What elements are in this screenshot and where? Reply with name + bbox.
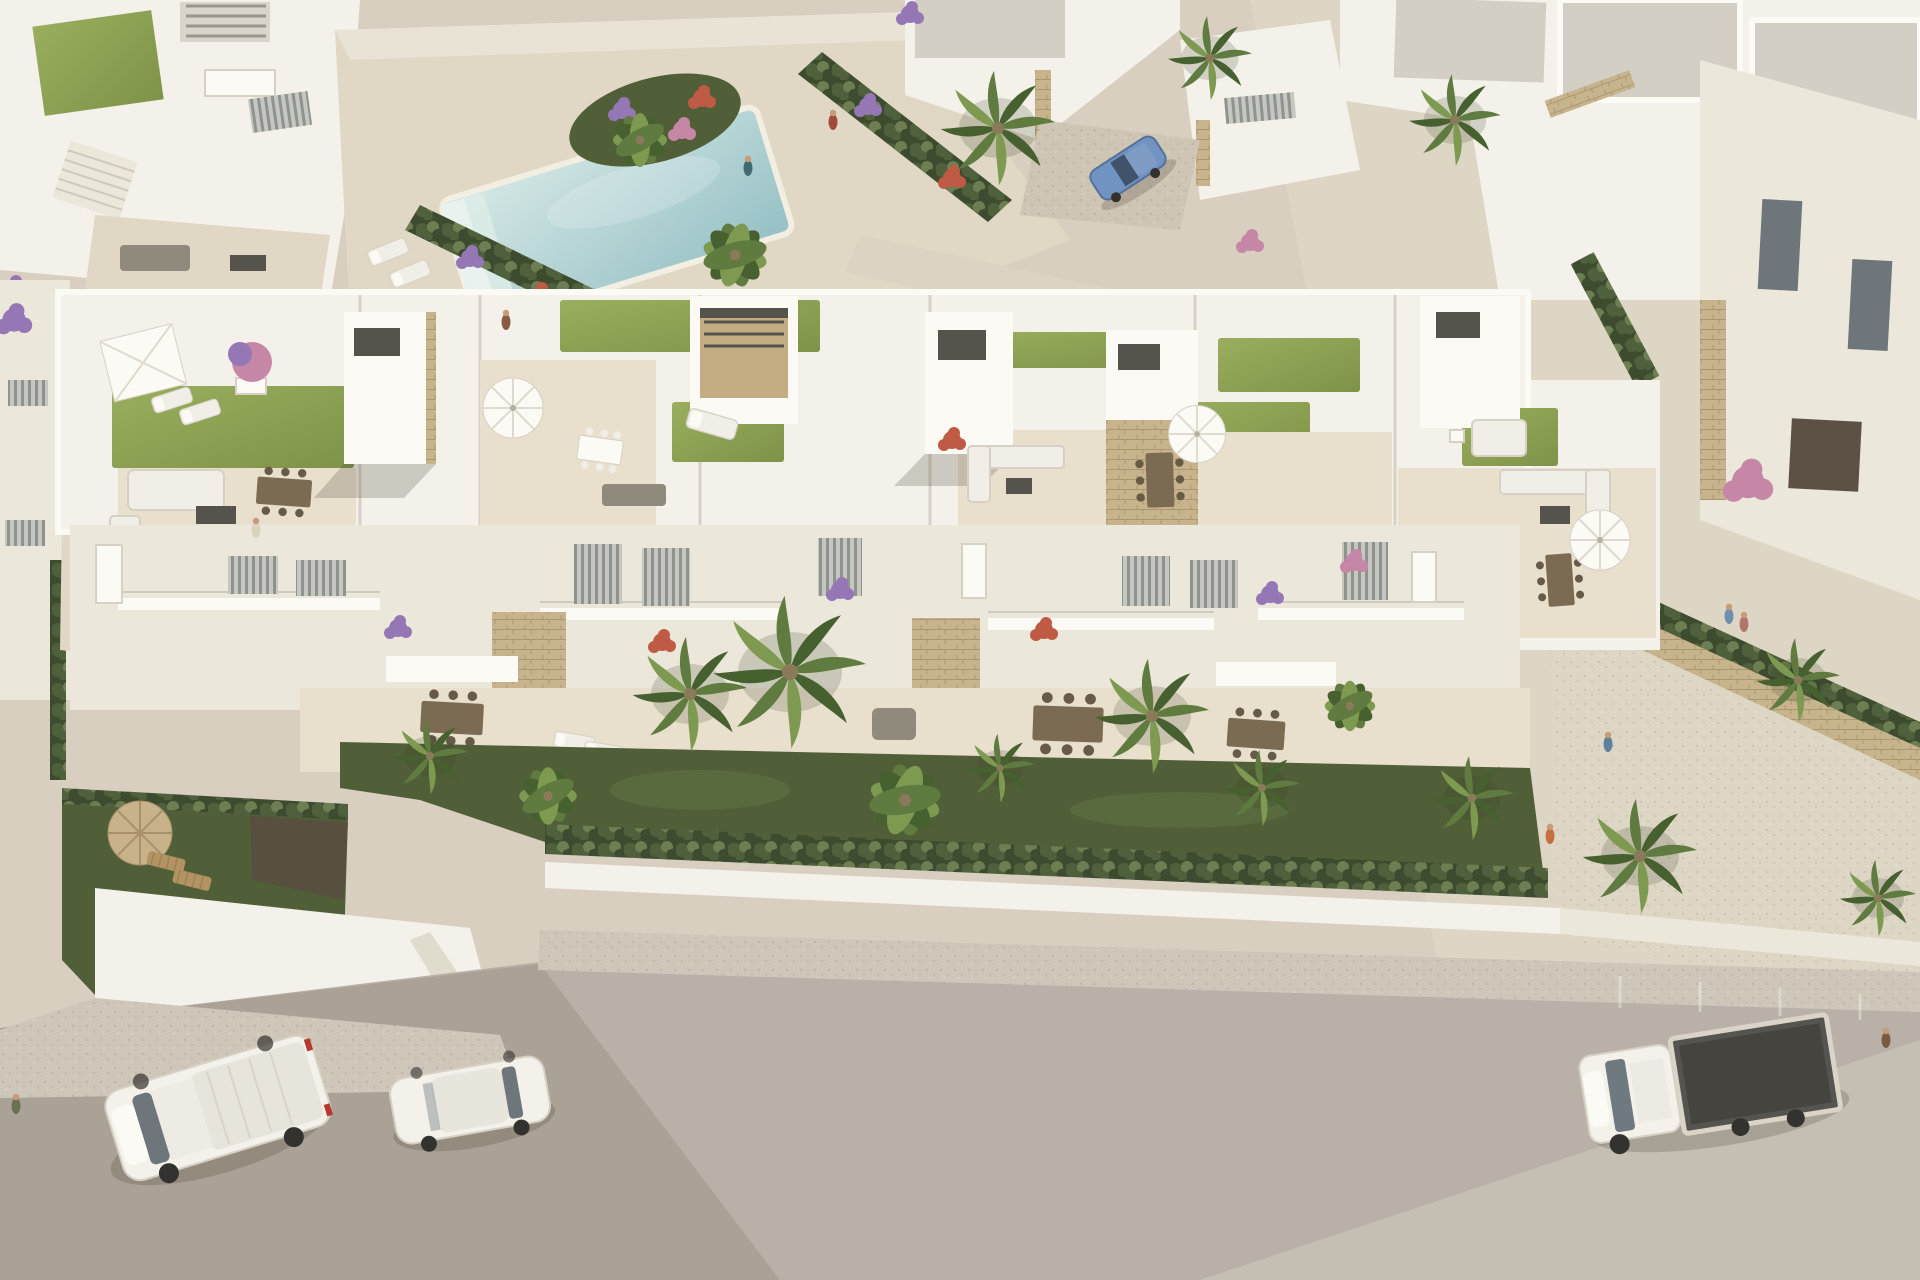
- roof-patio: [1196, 432, 1392, 528]
- flat-roof: [915, 0, 1065, 58]
- coffee-table: [1540, 506, 1570, 524]
- wood-deck: [700, 316, 788, 398]
- outdoor-sofa: [128, 470, 224, 510]
- entrance-porch: [1788, 418, 1862, 492]
- rooftop-lawn: [112, 386, 354, 468]
- person-pool-deck: [744, 156, 753, 176]
- window: [1848, 259, 1893, 351]
- entry-canopy: [1216, 662, 1336, 686]
- person-sidewalk: [12, 1094, 21, 1114]
- patio-table: [205, 70, 275, 96]
- top-left-villas: [0, 0, 360, 300]
- coffee-table: [1006, 478, 1032, 494]
- louver-window: [8, 380, 48, 406]
- stair-bulkhead: [1420, 296, 1520, 428]
- person-balcony: [1740, 612, 1749, 632]
- main-building: [58, 292, 1660, 772]
- ac-unit: [1436, 312, 1480, 338]
- louver-window: [5, 520, 45, 546]
- side-stool: [1450, 430, 1464, 442]
- ac-unit: [938, 330, 986, 360]
- ac-unit: [1118, 344, 1160, 370]
- aerial-render: [0, 0, 1920, 1280]
- window: [1758, 199, 1803, 291]
- white-parasol: [1169, 406, 1226, 463]
- coffee-table: [230, 255, 266, 271]
- ac-unit: [354, 328, 400, 356]
- scene-canvas: [0, 0, 1920, 1280]
- roof-garden-lawn: [32, 10, 163, 116]
- person-near-truck: [1882, 1028, 1891, 1048]
- flat-roof: [1394, 0, 1547, 83]
- stone-column: [1700, 300, 1726, 500]
- white-parasol: [483, 378, 543, 438]
- entry-canopy: [386, 656, 518, 682]
- patio-daybed: [872, 708, 916, 740]
- white-parasol: [1570, 510, 1630, 570]
- person-on-path: [829, 110, 838, 130]
- stone-feature-wall: [912, 618, 980, 696]
- person-terrace: [1604, 732, 1613, 752]
- person-rooftop: [252, 518, 261, 538]
- outdoor-sofa: [120, 245, 190, 271]
- daybed: [1472, 420, 1526, 456]
- coffee-table: [196, 506, 236, 524]
- person-garden: [1546, 824, 1555, 844]
- pergola-beam: [700, 308, 788, 318]
- outdoor-sofa: [602, 484, 666, 506]
- stair-bulkhead-pergola: [690, 296, 798, 424]
- person-sitting-poolside: [502, 310, 511, 330]
- rooftop-lawn: [1218, 338, 1360, 392]
- stone-pillar: [1196, 120, 1210, 186]
- person-balcony: [1725, 604, 1734, 624]
